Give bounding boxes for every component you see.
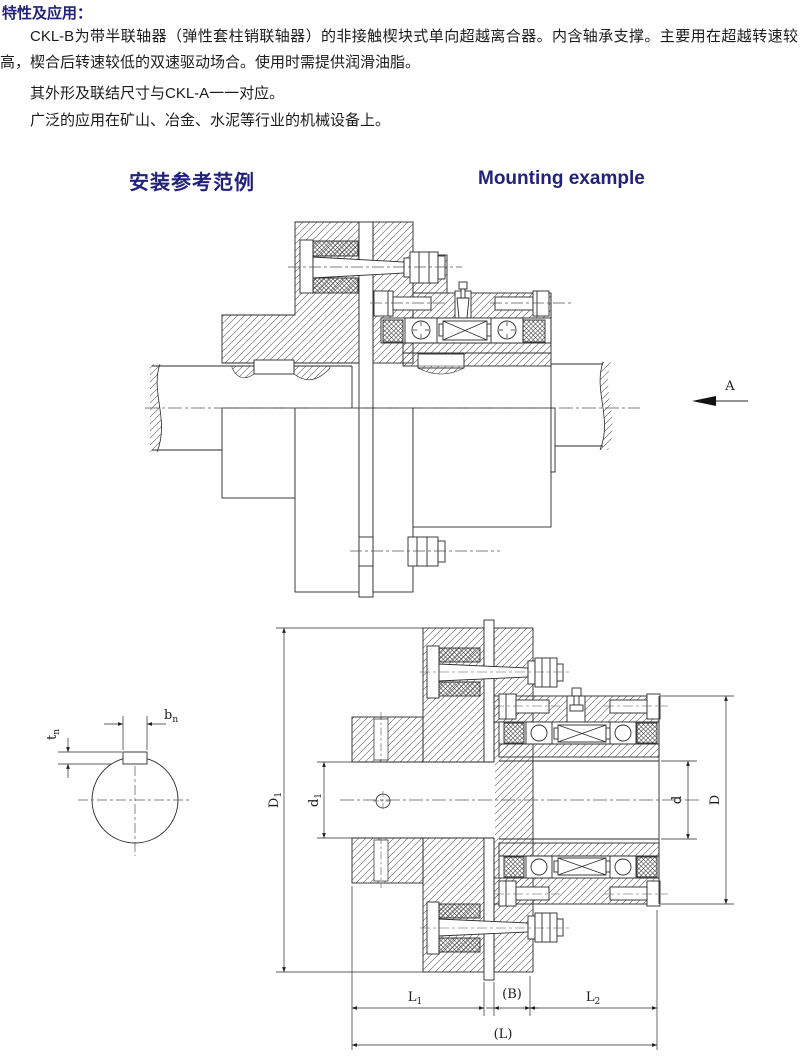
seal-left: [383, 320, 403, 342]
bearing-right: [491, 318, 523, 343]
lower-outline-view: [222, 408, 555, 597]
svg-text:D1: D1: [267, 792, 284, 808]
mounting-example-drawing: A: [145, 222, 748, 597]
technical-drawings: A bn: [0, 0, 800, 1058]
svg-text:tn: tn: [45, 729, 62, 740]
view-arrow-A: A: [692, 379, 748, 406]
svg-text:L2: L2: [586, 990, 600, 1007]
dim-bn: bn: [104, 708, 178, 750]
svg-text:D: D: [708, 795, 723, 805]
catalog-page: 特性及应用： CKL-B为带半联轴器（弹性套柱销联轴器）的非接触楔块式单向超越离…: [0, 0, 800, 1058]
keyway-detail: bn tn: [45, 708, 192, 856]
lower-pin-nut: [408, 537, 445, 566]
svg-text:L1: L1: [408, 990, 422, 1007]
shaft-key: [254, 360, 294, 374]
grease-fitting-2: [567, 688, 585, 722]
grease-fitting: [455, 282, 471, 318]
sprag-element: [439, 321, 491, 340]
bearing-left: [405, 318, 437, 343]
dimension-drawing: bn tn: [45, 620, 734, 1050]
svg-text:bn: bn: [164, 708, 178, 725]
key-section: [123, 752, 147, 764]
svg-text:(L): (L): [494, 1027, 513, 1042]
right-shaft: [551, 362, 613, 450]
svg-text:d1: d1: [307, 793, 324, 807]
seal-right: [523, 320, 545, 342]
svg-text:(B): (B): [502, 987, 522, 1002]
view-arrow-label: A: [724, 379, 735, 394]
